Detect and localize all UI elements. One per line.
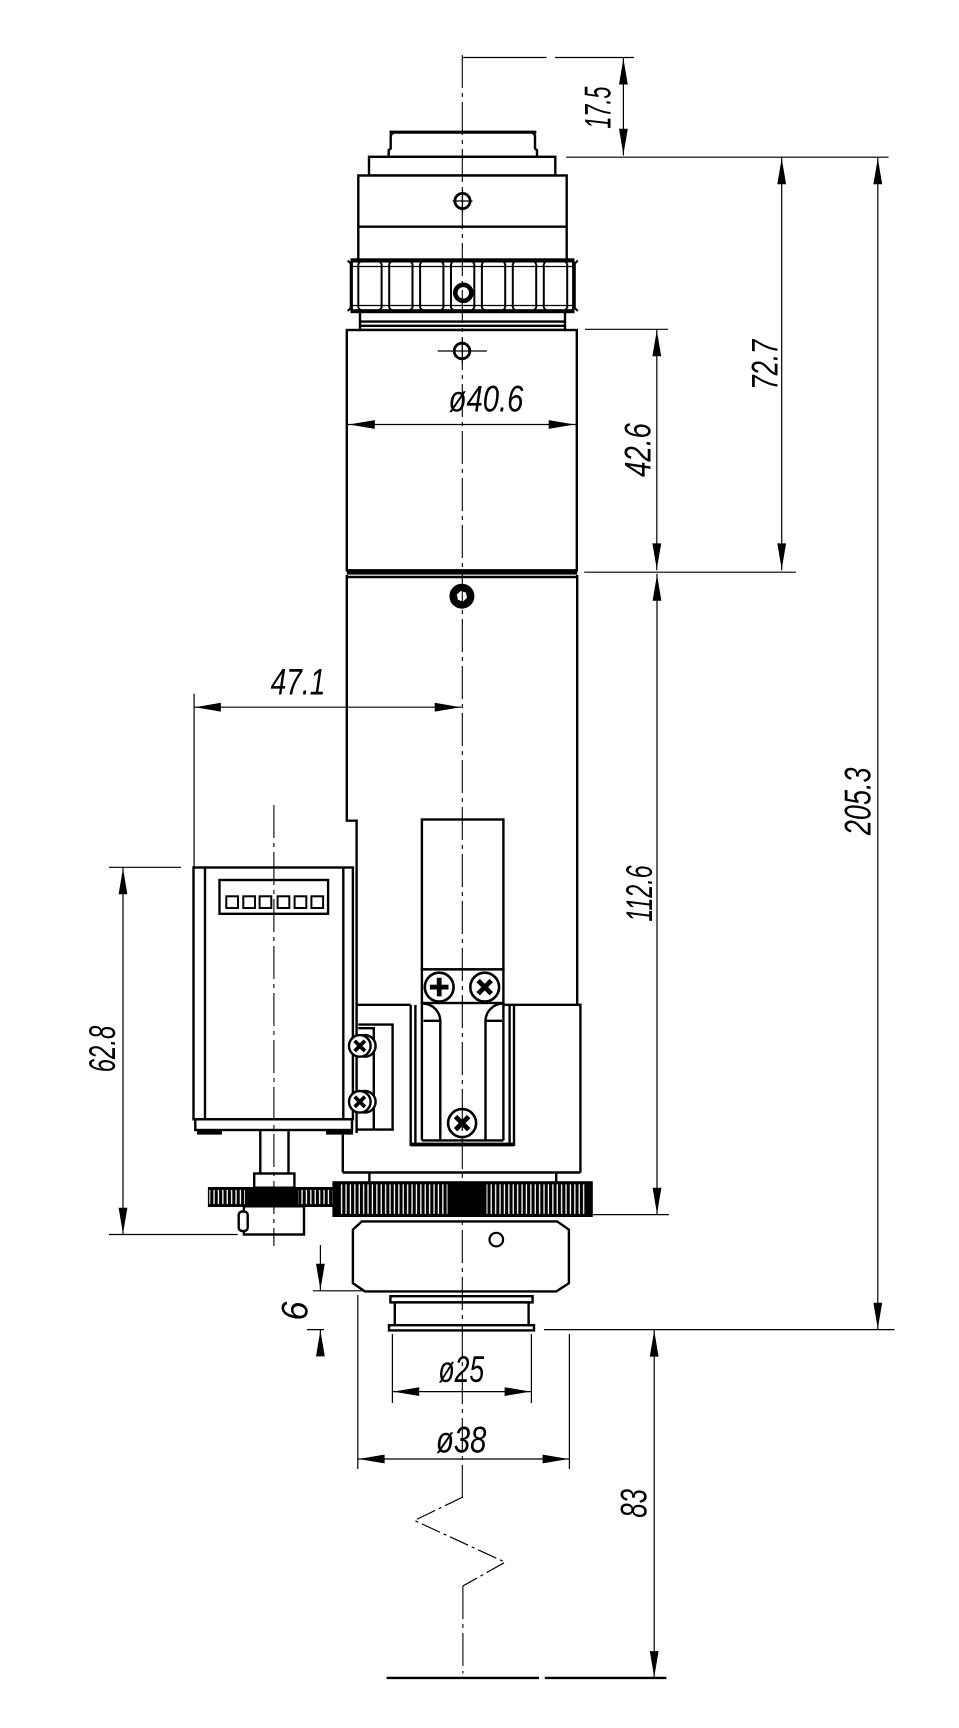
svg-text:72.7: 72.7 bbox=[744, 339, 785, 390]
svg-text:ø38: ø38 bbox=[436, 1420, 487, 1461]
svg-text:6: 6 bbox=[275, 1301, 316, 1320]
svg-text:ø40.6: ø40.6 bbox=[449, 379, 524, 420]
svg-text:42.6: 42.6 bbox=[617, 423, 658, 477]
svg-text:17.5: 17.5 bbox=[578, 86, 619, 128]
svg-text:205.3: 205.3 bbox=[837, 767, 878, 836]
svg-text:ø25: ø25 bbox=[438, 1349, 484, 1390]
svg-text:112.6: 112.6 bbox=[619, 865, 660, 922]
svg-text:47.1: 47.1 bbox=[271, 662, 326, 703]
svg-text:83: 83 bbox=[613, 1489, 654, 1518]
svg-text:62.8: 62.8 bbox=[82, 1025, 123, 1072]
